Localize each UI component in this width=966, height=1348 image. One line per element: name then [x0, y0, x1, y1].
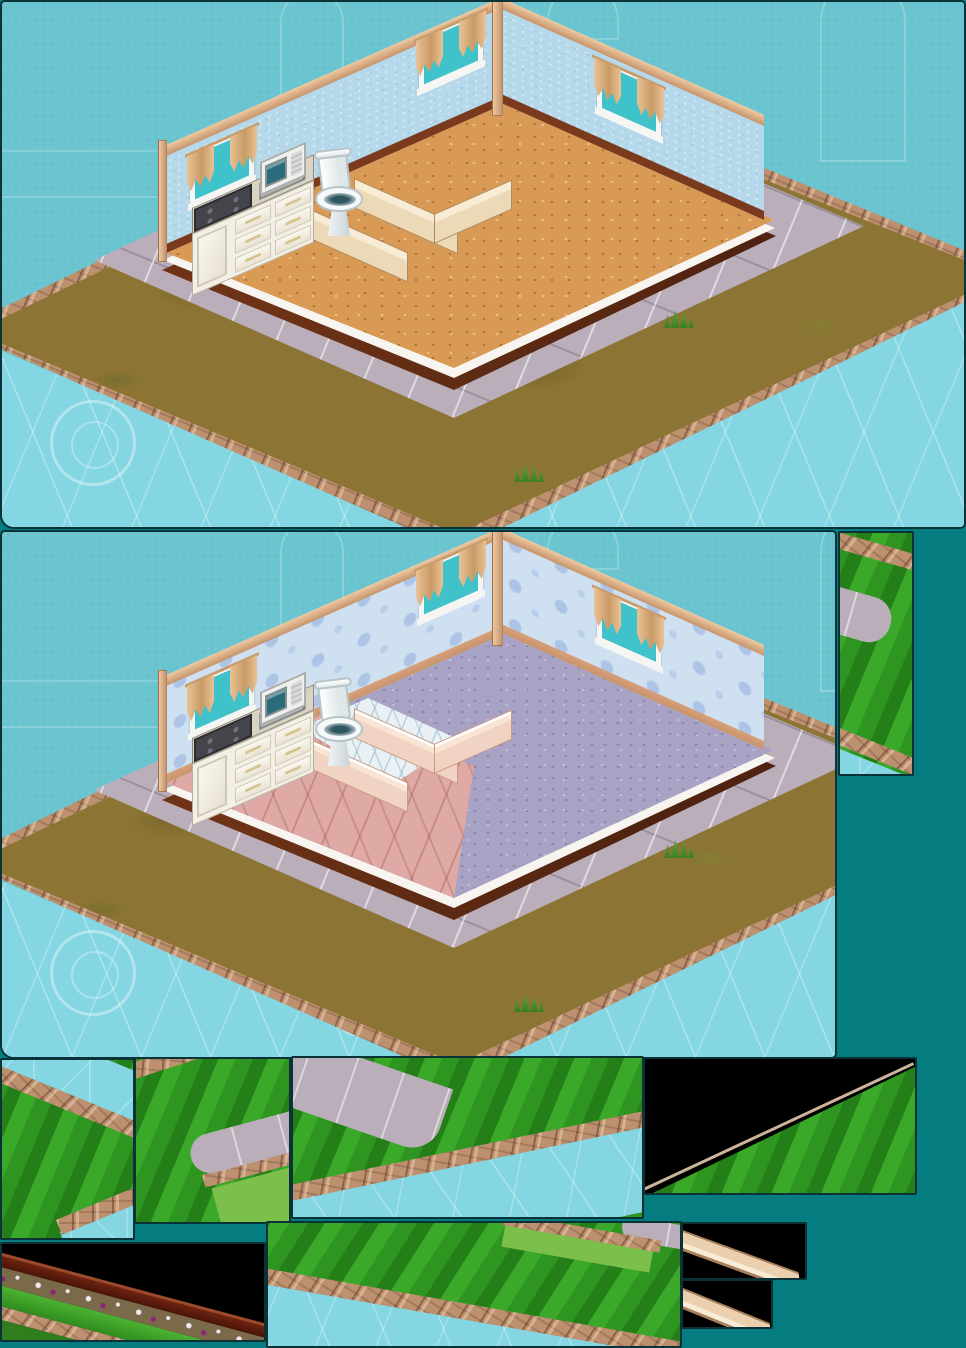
- wood-trim-piece-long: [681, 1222, 807, 1280]
- toilet-bowl-opening: [324, 193, 356, 206]
- blueprint-scroll-motif: [50, 930, 136, 1016]
- blueprint-window-sketch: [820, 0, 906, 162]
- window: [597, 587, 661, 669]
- grass-strip-piece-f: [266, 1221, 682, 1348]
- cabinet-door: [197, 225, 227, 288]
- wall-corner-post: [492, 0, 503, 116]
- toilet: [308, 678, 368, 768]
- panel-unfurnished-room-scene: [0, 0, 966, 529]
- brick-garden-wall: [134, 1057, 291, 1080]
- toilet-lid: [313, 147, 352, 161]
- panel-decorated-room-scene: [0, 530, 837, 1059]
- baseboard-plank: [681, 1287, 773, 1329]
- scene-unfurnished: [2, 2, 964, 527]
- toilet: [308, 148, 368, 238]
- blueprint-scroll-motif: [50, 400, 136, 486]
- toilet-lid: [313, 677, 352, 691]
- toilet-bowl: [315, 716, 363, 742]
- stone-path: [838, 579, 897, 647]
- blueprint-window-sketch: [820, 530, 837, 692]
- baseboard-plank: [681, 1230, 803, 1280]
- scene-decorated: [2, 532, 835, 1057]
- grass-corner-piece-a: [0, 1058, 135, 1240]
- flower-bed: [0, 1248, 266, 1342]
- stone-path: [291, 1056, 453, 1156]
- microwave-screen: [265, 686, 287, 718]
- window: [597, 57, 661, 139]
- grass-strip-piece-c: [291, 1056, 644, 1219]
- grass-strip-right-piece: [838, 531, 914, 776]
- toilet-bowl: [315, 186, 363, 212]
- sprite-sheet: [0, 0, 966, 1348]
- microwave-panel: [291, 149, 302, 176]
- wall-end-post: [158, 670, 167, 792]
- grass-corner-piece-b: [134, 1057, 291, 1224]
- brick-garden-wall: [838, 531, 914, 582]
- wall-corner-post: [492, 530, 503, 646]
- microwave-panel: [291, 679, 302, 706]
- toilet-pedestal: [328, 738, 350, 766]
- microwave-screen: [265, 156, 287, 188]
- toilet-bowl-opening: [324, 723, 356, 736]
- toilet-pedestal: [328, 208, 350, 236]
- wood-trim-piece-short: [681, 1279, 773, 1329]
- flower-border-piece: [0, 1242, 266, 1342]
- grass-triangle-piece-d: [643, 1057, 917, 1195]
- cabinet-door: [197, 755, 227, 818]
- wall-end-post: [158, 140, 167, 262]
